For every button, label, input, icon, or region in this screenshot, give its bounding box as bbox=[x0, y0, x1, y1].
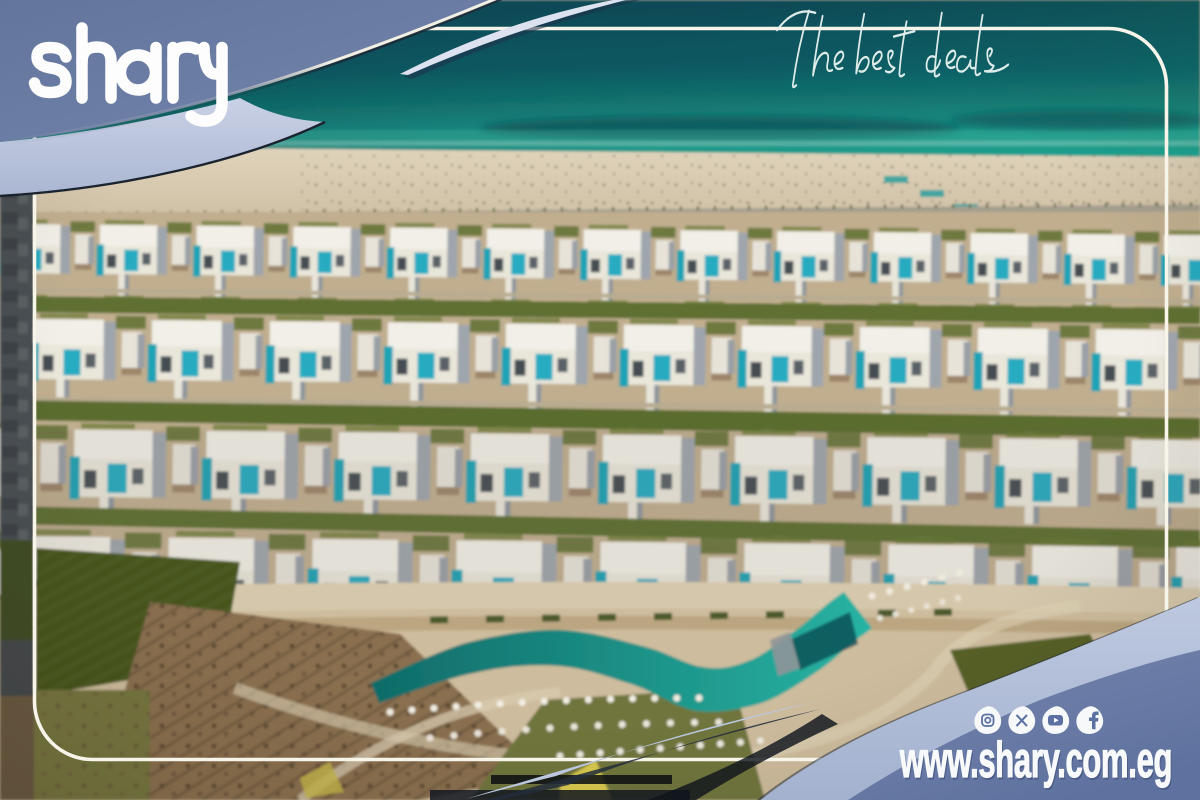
svg-text:www.shary.com.eg: www.shary.com.eg bbox=[899, 731, 1172, 787]
